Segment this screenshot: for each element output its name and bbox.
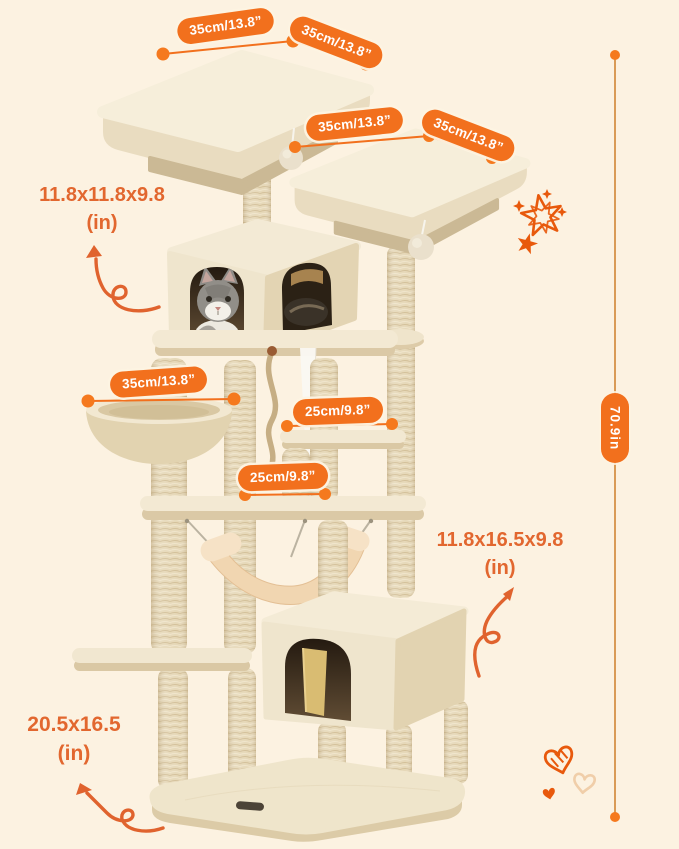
- heart-doodle-icon: [542, 746, 595, 801]
- base-board: [152, 760, 464, 842]
- product-dimension-image: 35cm/13.8” 35cm/13.8” 35cm/13.8” 35cm/13…: [0, 0, 679, 849]
- lower-house-size-unit: (in): [425, 555, 575, 583]
- mid-platform: [140, 496, 426, 520]
- cat-house: [264, 596, 464, 728]
- arrow-to-house: [475, 595, 509, 676]
- dimension-line: [245, 494, 325, 495]
- dimension-badge-upper-platform-width: 25cm/9.8”: [293, 396, 383, 425]
- lower-house-size-label: 11.8x16.5x9.8 (in): [425, 527, 575, 582]
- base-size-label: 20.5x16.5 (in): [4, 711, 144, 769]
- base-size-value: 20.5x16.5: [4, 711, 144, 740]
- condo-size-label: 11.8x11.8x9.8 (in): [27, 182, 177, 237]
- arrow-to-condo: [96, 259, 159, 311]
- base-size-unit: (in): [4, 740, 144, 769]
- scratching-post-house: [318, 520, 348, 604]
- rope-toy: [267, 346, 277, 472]
- star-doodle-icon: [513, 189, 567, 254]
- condo-size-value: 11.8x11.8x9.8: [27, 182, 177, 210]
- cat-silhouette: [284, 298, 328, 326]
- dimension-line: [163, 41, 293, 54]
- lower-house-size-value: 11.8x16.5x9.8: [425, 527, 575, 555]
- basket: [86, 396, 232, 464]
- total-height-badge: 70.9in: [601, 393, 629, 463]
- dimension-badge-lower-platform-width: 25cm/9.8”: [238, 462, 328, 491]
- condo-size-unit: (in): [27, 210, 177, 238]
